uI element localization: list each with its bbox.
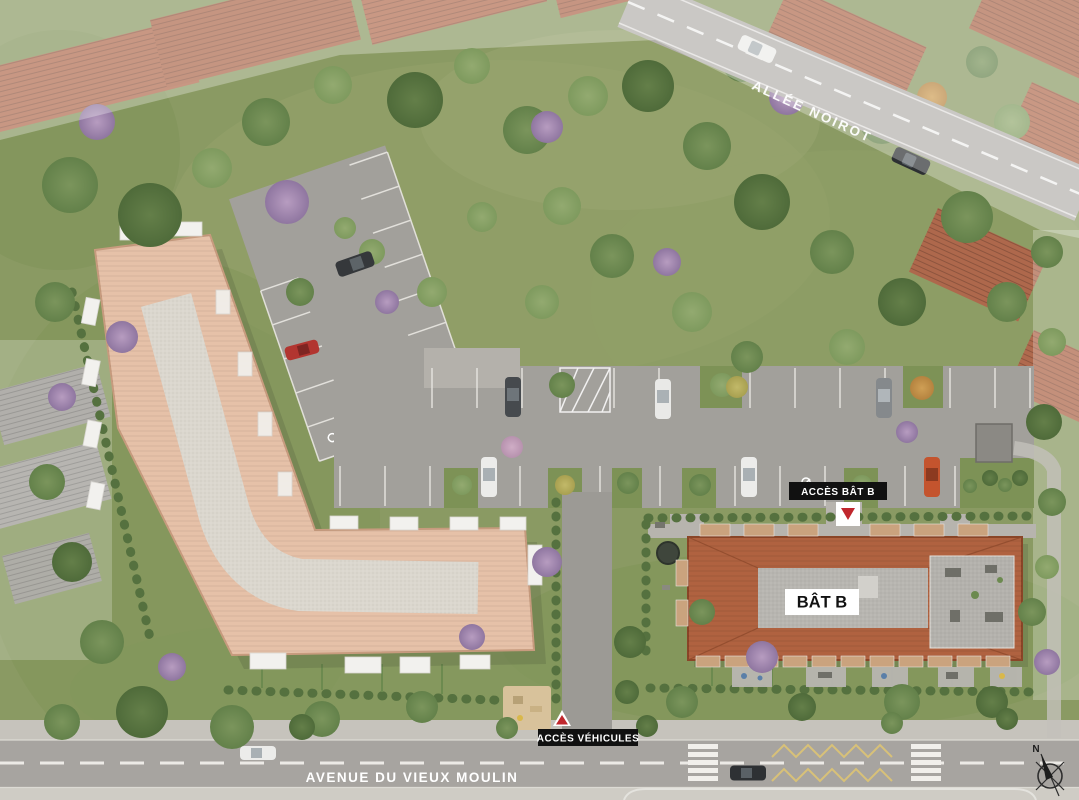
playground-item	[517, 715, 523, 721]
building-b-name: BÂT B	[797, 593, 847, 612]
site-plan: ALLÉE NOIROT	[0, 0, 1079, 800]
marker-acces-vehicules-label: ACCÈS VÉHICULES	[537, 732, 640, 745]
bin-shelter	[976, 424, 1012, 462]
driveway	[562, 492, 612, 740]
building-b-roof-terrace	[930, 556, 1014, 648]
playground-item	[513, 696, 523, 704]
roof-hatch	[858, 576, 878, 598]
compass-north-label: N	[1032, 744, 1039, 755]
building-b-name-badge: BÂT B	[785, 589, 859, 615]
playground-item	[530, 706, 542, 712]
site-plan-canvas: ALLÉE NOIROT	[0, 0, 1079, 800]
street-name-avenue: AVENUE DU VIEUX MOULIN	[306, 770, 519, 785]
marker-acces-bat-b-label: ACCÈS BÂT B	[801, 485, 875, 498]
